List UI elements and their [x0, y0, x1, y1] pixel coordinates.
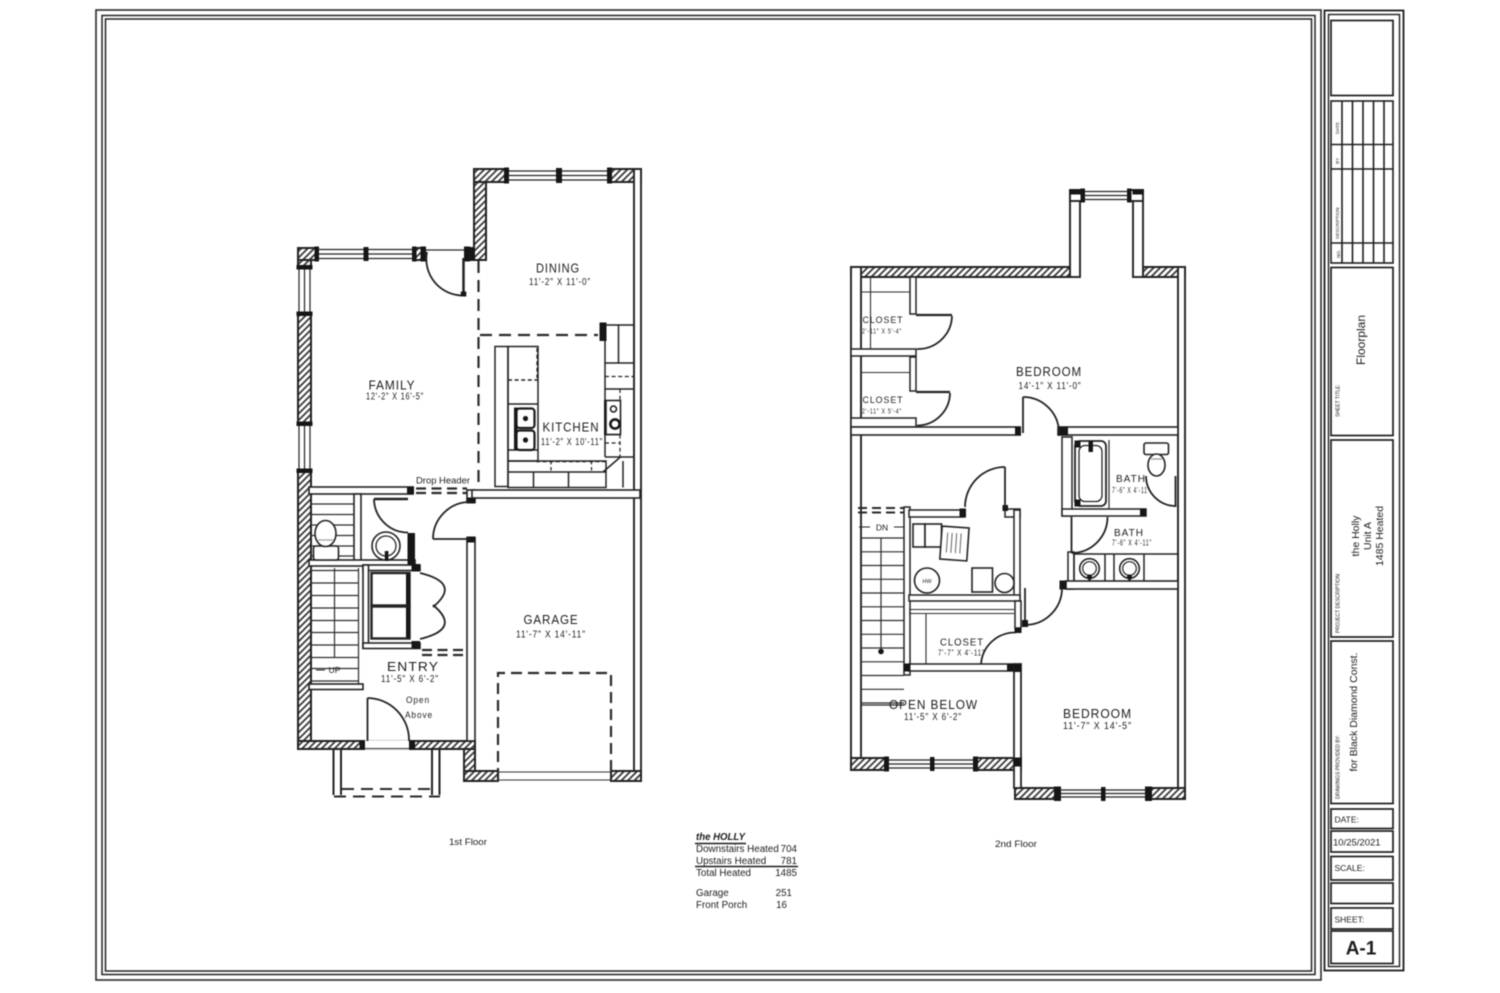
svg-text:KITCHEN: KITCHEN [543, 421, 600, 435]
svg-text:DATE:: DATE: [1335, 815, 1359, 825]
svg-text:704: 704 [781, 844, 798, 855]
svg-text:Floorplan: Floorplan [1354, 315, 1368, 365]
svg-text:DN: DN [876, 523, 888, 533]
svg-text:7'-6" X 4'-11": 7'-6" X 4'-11" [1112, 486, 1150, 495]
svg-text:GARAGE: GARAGE [524, 612, 579, 627]
svg-text:DESCRIPTION: DESCRIPTION [1335, 208, 1340, 239]
svg-text:BEDROOM: BEDROOM [1063, 706, 1132, 721]
svg-text:7'-7" X 4'-11": 7'-7" X 4'-11" [938, 649, 985, 658]
svg-text:11'-5" X 6'-2": 11'-5" X 6'-2" [381, 674, 439, 685]
svg-text:DRAWINGS PROVIDED BY:: DRAWINGS PROVIDED BY: [1336, 735, 1342, 799]
svg-text:HW: HW [922, 579, 932, 585]
svg-text:11'-5" X 6'-2": 11'-5" X 6'-2" [904, 712, 962, 723]
svg-text:BEDROOM: BEDROOM [1016, 364, 1082, 379]
svg-text:Garage: Garage [696, 888, 729, 899]
svg-text:2'-11" X 5'-4": 2'-11" X 5'-4" [862, 327, 902, 336]
svg-text:Unit A: Unit A [1362, 522, 1374, 550]
svg-text:PROJECT DESCRIPTION:: PROJECT DESCRIPTION: [1336, 573, 1342, 633]
svg-text:14'-1" X 11'-0": 14'-1" X 11'-0" [1019, 381, 1082, 392]
svg-text:10/25/2021: 10/25/2021 [1333, 838, 1381, 849]
svg-text:16: 16 [776, 900, 787, 911]
svg-text:7'-6" X 4'-11": 7'-6" X 4'-11" [1112, 539, 1152, 548]
svg-text:DINING: DINING [536, 261, 580, 276]
svg-text:OPEN BELOW: OPEN BELOW [889, 698, 978, 712]
svg-text:Above: Above [405, 710, 433, 721]
svg-text:Open: Open [406, 695, 430, 706]
svg-text:Downstairs Heated: Downstairs Heated [696, 844, 779, 855]
svg-text:for Black Diamond Const.: for Black Diamond Const. [1348, 652, 1360, 771]
svg-text:Drop Header: Drop Header [416, 476, 470, 486]
svg-text:BATH: BATH [1114, 528, 1144, 539]
svg-text:DATE: DATE [1335, 122, 1340, 134]
svg-text:NO.: NO. [1336, 250, 1341, 258]
svg-text:FAMILY: FAMILY [369, 378, 416, 393]
svg-text:11'-7" X 14'-5": 11'-7" X 14'-5" [1063, 721, 1132, 732]
svg-text:11'-2" X 11'-0": 11'-2" X 11'-0" [529, 277, 591, 288]
svg-text:1485: 1485 [775, 868, 797, 879]
svg-text:11'-7" X 14'-11": 11'-7" X 14'-11" [516, 630, 586, 641]
svg-text:the HOLLY: the HOLLY [696, 832, 746, 843]
svg-text:Upstairs Heated: Upstairs Heated [696, 856, 766, 867]
svg-text:11'-2" X 10'-11": 11'-2" X 10'-11" [541, 437, 603, 448]
svg-text:CLOSET: CLOSET [863, 395, 904, 406]
svg-text:2nd Floor: 2nd Floor [995, 839, 1037, 849]
svg-text:BATH: BATH [1116, 474, 1146, 485]
svg-text:SHEET TITLE:: SHEET TITLE: [1336, 384, 1342, 417]
svg-text:12'-2" X 16'-5": 12'-2" X 16'-5" [366, 392, 424, 403]
svg-text:Front Porch: Front Porch [696, 900, 747, 911]
svg-text:SHEET:: SHEET: [1335, 915, 1365, 925]
svg-text:251: 251 [776, 888, 792, 899]
svg-text:the Holly: the Holly [1350, 515, 1362, 557]
svg-text:1st Floor: 1st Floor [449, 837, 487, 847]
svg-text:2'-11" X 5'-4": 2'-11" X 5'-4" [862, 407, 902, 416]
svg-text:ENTRY: ENTRY [387, 660, 439, 674]
svg-text:CLOSET: CLOSET [940, 638, 984, 649]
svg-text:781: 781 [781, 856, 797, 867]
svg-text:1485 Heated: 1485 Heated [1374, 506, 1386, 566]
svg-text:BY: BY [1335, 158, 1340, 164]
svg-text:A-1: A-1 [1346, 939, 1377, 960]
svg-text:UP: UP [329, 665, 341, 675]
svg-text:SCALE:: SCALE: [1335, 863, 1365, 873]
svg-text:Total Heated: Total Heated [696, 868, 751, 879]
svg-text:CLOSET: CLOSET [863, 315, 904, 326]
